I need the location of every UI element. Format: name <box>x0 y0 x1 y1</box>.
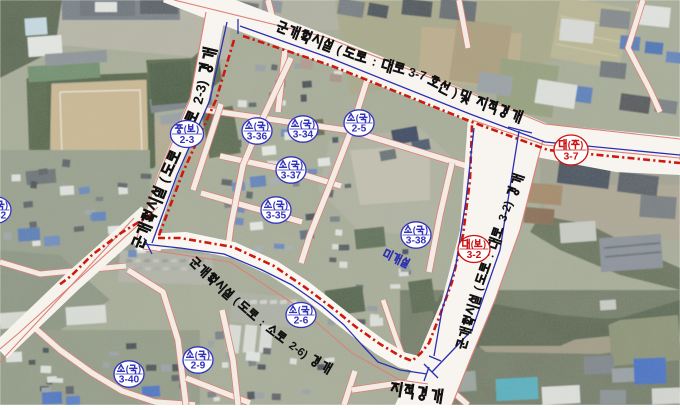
svg-text:(: ( <box>568 139 571 149</box>
svg-text:(: ( <box>300 119 303 129</box>
svg-text:): ) <box>580 139 583 149</box>
svg-text:(: ( <box>298 305 301 315</box>
svg-text:): ) <box>368 113 371 123</box>
svg-text:(: ( <box>254 121 257 131</box>
svg-text:3-38: 3-38 <box>406 236 427 247</box>
svg-text:): ) <box>196 124 199 134</box>
svg-text:3-35: 3-35 <box>266 211 287 222</box>
svg-text:3-2: 3-2 <box>467 250 482 261</box>
svg-text:2-3: 2-3 <box>180 135 195 146</box>
svg-text:): ) <box>425 225 428 235</box>
svg-text:(: ( <box>413 225 416 235</box>
svg-text:3-37: 3-37 <box>281 171 302 182</box>
svg-text:): ) <box>266 121 269 131</box>
svg-text:3-36: 3-36 <box>247 132 268 143</box>
svg-text:): ) <box>312 119 315 129</box>
svg-text:(: ( <box>288 160 291 170</box>
svg-text:(: ( <box>273 200 276 210</box>
svg-text:3-32: 3-32 <box>0 211 7 222</box>
svg-text:): ) <box>300 160 303 170</box>
svg-text:2-5: 2-5 <box>352 124 367 135</box>
svg-text:(: ( <box>184 124 187 134</box>
svg-text:): ) <box>207 350 210 360</box>
svg-text:3-40: 3-40 <box>119 375 140 386</box>
svg-text:(: ( <box>195 350 198 360</box>
svg-text:(: ( <box>356 113 359 123</box>
svg-text:2-9: 2-9 <box>191 361 206 372</box>
svg-text:(: ( <box>126 364 129 374</box>
svg-text:3-7: 3-7 <box>563 152 578 163</box>
svg-text:): ) <box>138 364 141 374</box>
svg-text:2-6: 2-6 <box>294 315 309 326</box>
svg-text:3-34: 3-34 <box>293 130 314 141</box>
svg-text:): ) <box>310 305 313 315</box>
svg-text:): ) <box>5 200 8 210</box>
svg-text:): ) <box>285 200 288 210</box>
svg-text:): ) <box>483 239 486 249</box>
svg-text:(: ( <box>471 239 474 249</box>
